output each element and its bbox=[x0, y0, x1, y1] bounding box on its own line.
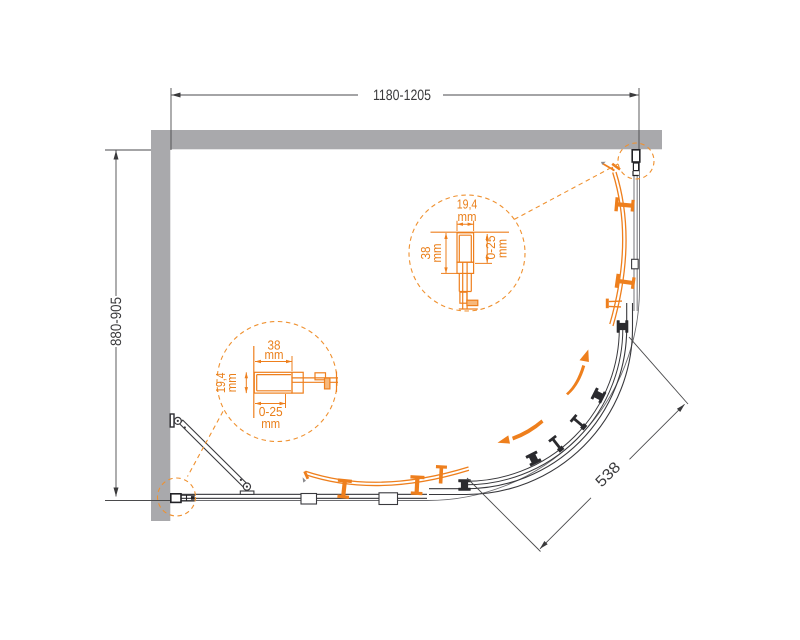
svg-text:mm: mm bbox=[261, 416, 280, 431]
svg-text:mm: mm bbox=[224, 373, 239, 392]
svg-text:mm: mm bbox=[495, 239, 510, 258]
svg-text:mm: mm bbox=[265, 347, 284, 362]
svg-text:mm: mm bbox=[458, 209, 477, 224]
svg-text:1180-1205: 1180-1205 bbox=[373, 87, 431, 104]
svg-text:880-905: 880-905 bbox=[108, 297, 125, 346]
svg-text:mm: mm bbox=[429, 244, 444, 263]
